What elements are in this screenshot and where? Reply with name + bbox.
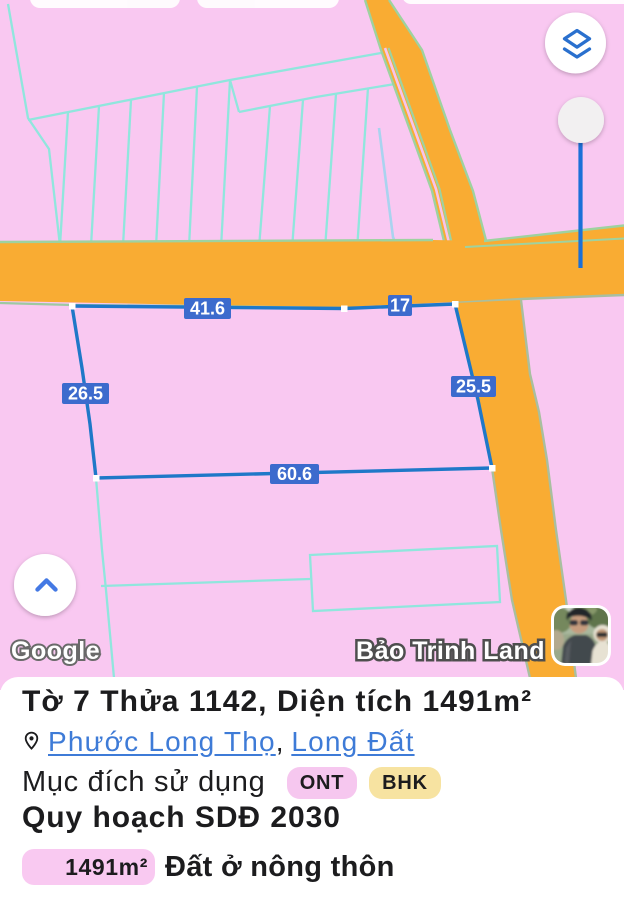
svg-text:17: 17 — [390, 296, 410, 316]
svg-text:25.5: 25.5 — [456, 377, 491, 397]
svg-text:26.5: 26.5 — [68, 384, 103, 404]
svg-text:41.6: 41.6 — [190, 299, 225, 319]
svg-text:Bảo Trinh Land: Bảo Trinh Land — [356, 637, 545, 665]
svg-text:60.6: 60.6 — [277, 464, 312, 484]
svg-text:Google: Google — [11, 637, 100, 665]
